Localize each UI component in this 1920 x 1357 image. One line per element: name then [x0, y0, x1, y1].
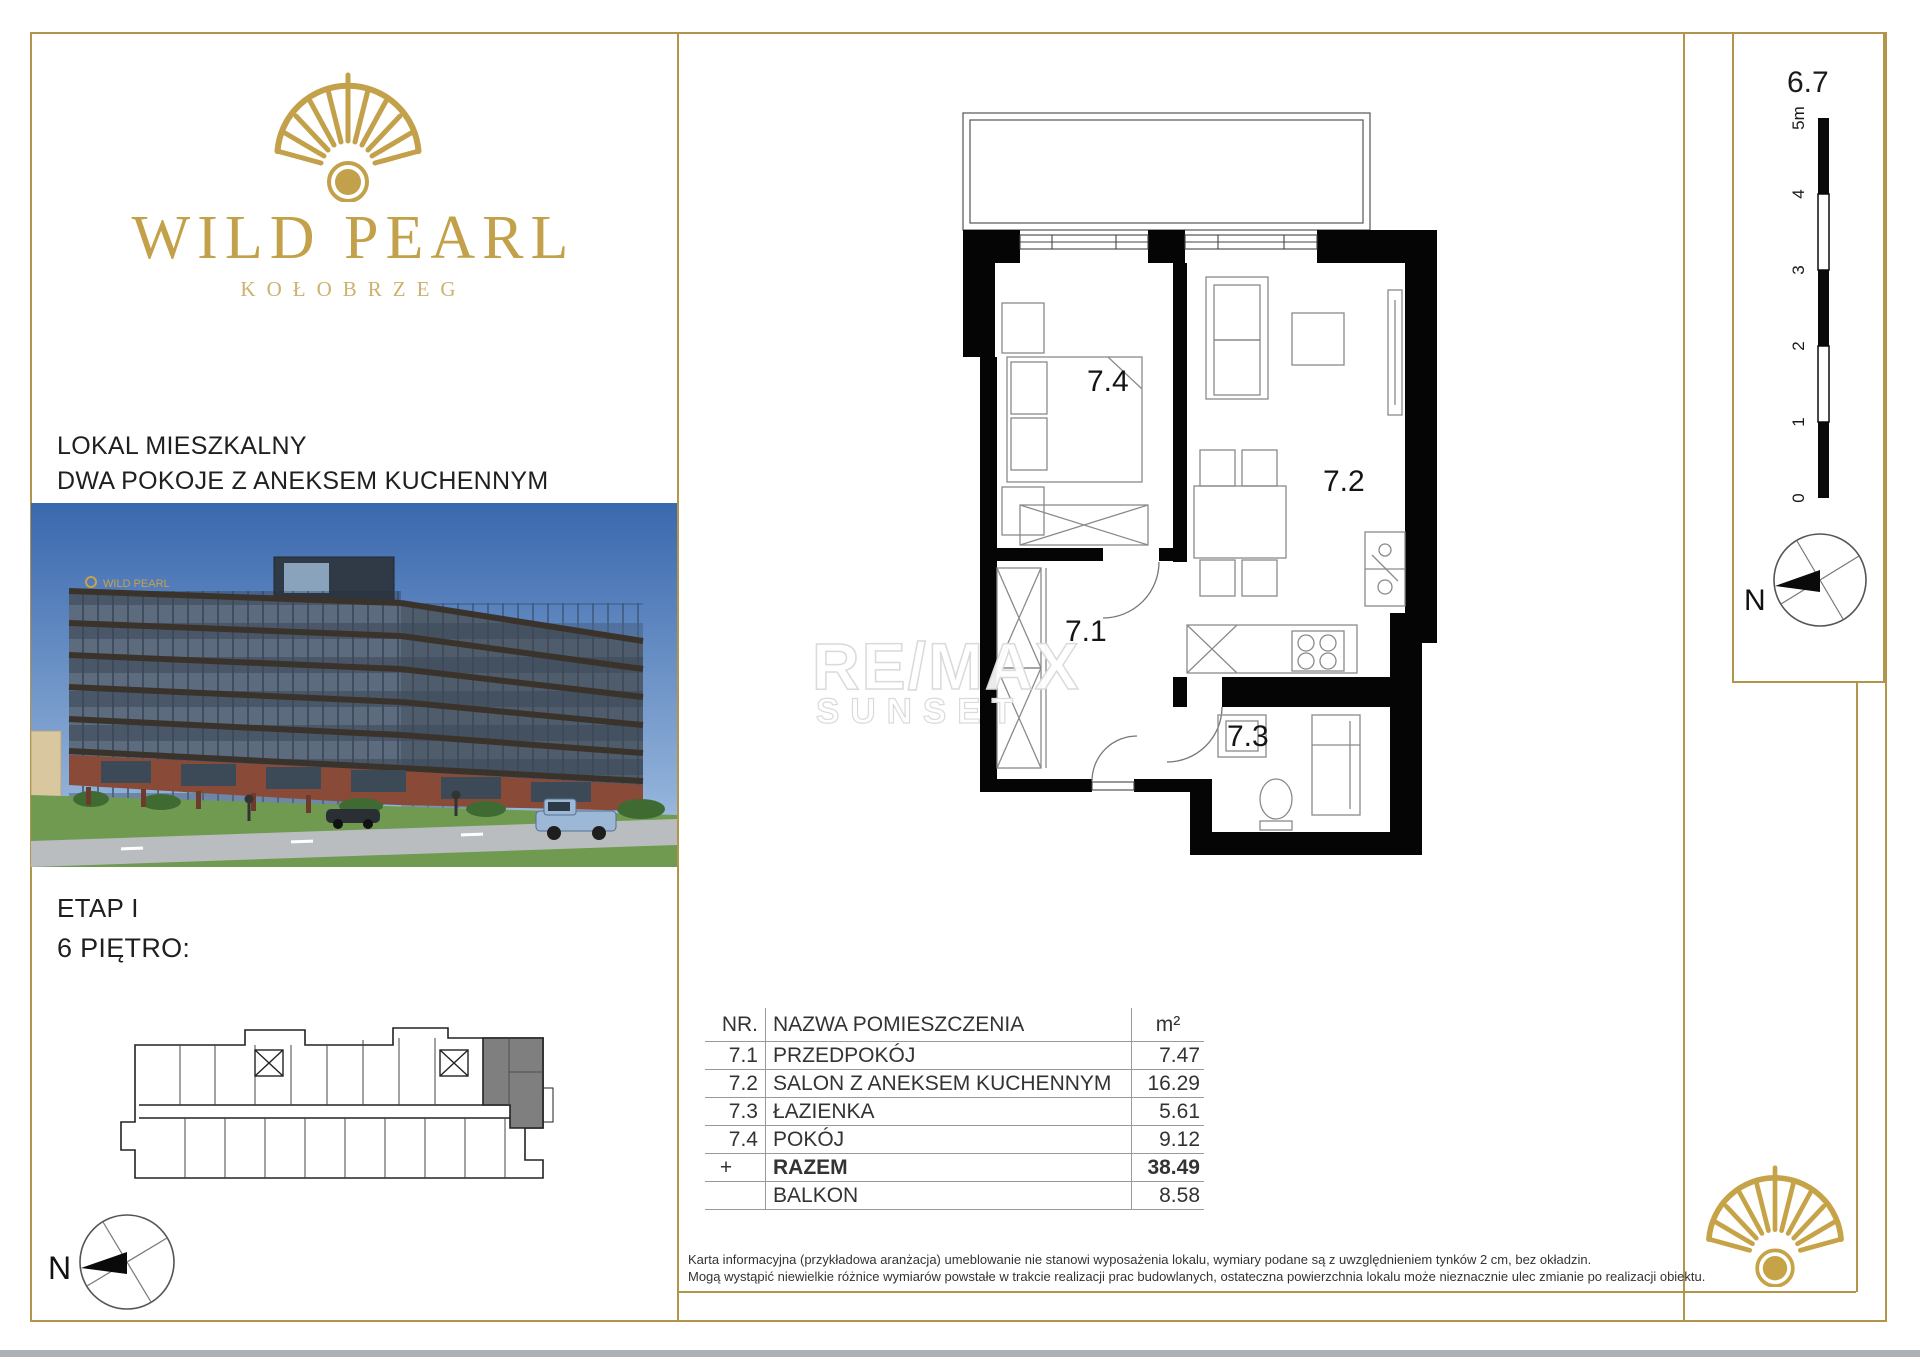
row-area: 9.12 — [1132, 1128, 1204, 1152]
floor-plan: 7.4 7.2 7.1 7.3 — [960, 85, 1460, 915]
building-sign: WILD PEARL — [103, 578, 170, 590]
door-arcs — [1092, 562, 1222, 781]
row-nr: 7.1 — [705, 1042, 766, 1069]
row-area: 7.47 — [1132, 1044, 1204, 1068]
balcony-name: BALKON — [766, 1182, 1132, 1209]
elevator-cores — [255, 1050, 468, 1076]
left-panel-divider — [677, 32, 679, 1322]
brand-shell-icon — [268, 70, 428, 202]
table-row: 7.1 PRZEDPOKÓJ 7.47 — [705, 1042, 1204, 1070]
row-nr: 7.4 — [705, 1126, 766, 1153]
scale-tick-0: 0 — [1789, 493, 1808, 502]
disclaimer-line2: Mogą wystąpić niewielkie różnice wymiaró… — [688, 1268, 1848, 1285]
listing-type-line1: LOKAL MIESZKALNY — [57, 432, 307, 461]
bedroom-furniture — [1002, 303, 1148, 545]
header-nr: NR. — [705, 1008, 766, 1041]
header-area: m² — [1132, 1013, 1204, 1037]
row-name: PRZEDPOKÓJ — [766, 1042, 1132, 1069]
scale-tick-5m: 5m — [1789, 106, 1808, 130]
row-name: POKÓJ — [766, 1126, 1132, 1153]
room-label-73: 7.3 — [1227, 720, 1269, 753]
scale-ratio-label: 6.7 — [1787, 66, 1829, 99]
room-area-table: NR. NAZWA POMIESZCZENIA m² 7.1 PRZEDPOKÓ… — [705, 1008, 1204, 1210]
row-name: SALON Z ANEKSEM KUCHENNYM — [766, 1070, 1132, 1097]
highlighted-unit — [483, 1038, 553, 1128]
content-right-divider — [1683, 32, 1685, 1322]
building-photo: WILD PEARL — [31, 503, 677, 867]
table-row: 7.4 POKÓJ 9.12 — [705, 1126, 1204, 1154]
header-name: NAZWA POMIESZCZENIA — [766, 1008, 1132, 1041]
scale-tick-2: 2 — [1789, 341, 1808, 350]
row-nr: 7.3 — [705, 1098, 766, 1125]
room-label-72: 7.2 — [1323, 465, 1365, 498]
bottom-edge-strip — [0, 1350, 1920, 1357]
balcony-nr — [705, 1182, 766, 1209]
total-name: RAZEM — [766, 1154, 1132, 1181]
watermark-sunset: SUNSET — [816, 692, 1024, 732]
disclaimer-bottom-line — [679, 1291, 1856, 1293]
total-plus: + — [705, 1154, 766, 1181]
table-row: 7.2 SALON Z ANEKSEM KUCHENNYM 16.29 — [705, 1070, 1204, 1098]
row-nr: 7.2 — [705, 1070, 766, 1097]
balcony — [963, 113, 1370, 230]
brand-city: KOŁOBRZEG — [30, 277, 677, 302]
total-area: 38.49 — [1132, 1156, 1204, 1180]
table-row: 7.3 ŁAZIENKA 5.61 — [705, 1098, 1204, 1126]
listing-type-line2: DWA POKOJE Z ANEKSEM KUCHENNYM — [57, 467, 548, 496]
table-header-row: NR. NAZWA POMIESZCZENIA m² — [705, 1008, 1204, 1042]
right-inner-vline — [1856, 683, 1858, 1292]
living-room-furniture — [1187, 277, 1405, 673]
compass-left — [72, 1210, 184, 1320]
row-name: ŁAZIENKA — [766, 1098, 1132, 1125]
table-total-row: + RAZEM 38.49 — [705, 1154, 1204, 1182]
disclaimer: Karta informacyjna (przykładowa aranżacj… — [688, 1251, 1848, 1285]
compass-left-n-label: N — [48, 1250, 71, 1287]
brand-name: WILD PEARL — [30, 203, 677, 274]
floor-label: 6 PIĘTRO: — [57, 933, 190, 964]
row-area: 16.29 — [1132, 1072, 1204, 1096]
room-label-74: 7.4 — [1087, 365, 1129, 398]
floor-overview-plan — [95, 1010, 560, 1200]
scale-tick-1: 1 — [1789, 417, 1808, 426]
compass-right-n-label: N — [1744, 584, 1766, 618]
compass-right — [1768, 528, 1874, 636]
table-balcony-row: BALKON 8.58 — [705, 1182, 1204, 1210]
disclaimer-line1: Karta informacyjna (przykładowa aranżacj… — [688, 1251, 1848, 1268]
row-area: 5.61 — [1132, 1100, 1204, 1124]
walls — [963, 230, 1437, 855]
balcony-area: 8.58 — [1132, 1184, 1204, 1208]
stage-label: ETAP I — [57, 893, 139, 924]
scale-tick-4: 4 — [1789, 189, 1808, 198]
apartment-info-card: WILD PEARL KOŁOBRZEG LOKAL MIESZKALNY DW… — [0, 0, 1920, 1357]
scale-tick-3: 3 — [1789, 265, 1808, 274]
